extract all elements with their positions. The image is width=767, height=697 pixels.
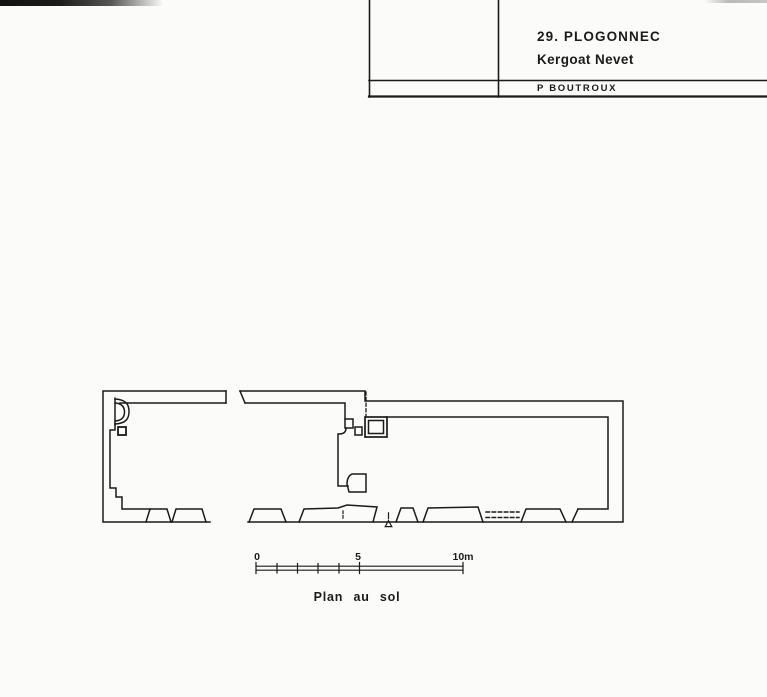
south-wall-segment	[396, 508, 418, 522]
scale-bar	[256, 563, 463, 574]
right-building-inner-wall-east	[387, 417, 608, 509]
south-wall-segment-corner	[572, 509, 578, 522]
chimney-square-inner	[369, 421, 384, 434]
door-jamb-block	[345, 419, 353, 428]
south-wall-segment	[423, 507, 483, 522]
right-building-outer-wall	[240, 391, 623, 522]
datum-marker-icon	[385, 513, 392, 527]
wall-pier-block	[118, 427, 126, 435]
title-block-commune: 29. PLOGONNEC	[537, 29, 661, 44]
south-wall-segment	[521, 509, 566, 522]
left-building-walls	[103, 391, 226, 522]
door-jamb-block	[355, 427, 362, 435]
scale-label-10m: 10m	[452, 551, 473, 563]
right-building-west-end-bevel	[240, 391, 245, 403]
plan-caption: Plan au sol	[314, 590, 401, 604]
scale-label-5: 5	[355, 551, 361, 563]
oven-niche-inner-arc	[115, 403, 125, 421]
interior-partition-wall	[338, 434, 348, 486]
oven-niche-half-round	[115, 398, 129, 425]
stair-pier-footprint	[347, 474, 366, 492]
south-wall-segment	[249, 509, 286, 522]
title-block-site: Kergoat Nevet	[537, 52, 634, 67]
left-building-south-openings	[146, 509, 206, 522]
title-block-author: P BOUTROUX	[537, 83, 617, 94]
left-building-inner-west-wall-profile	[110, 424, 150, 509]
south-wall-segment	[146, 509, 171, 522]
scanned-drawing-sheet: 29. PLOGONNEC Kergoat Nevet P BOUTROUX 0…	[0, 0, 767, 697]
right-building-south-openings	[249, 505, 578, 522]
right-building-inner-top-wall-west	[245, 403, 345, 419]
door-jamb-curve	[339, 428, 346, 434]
right-building-walls	[240, 391, 623, 527]
south-wall-segment	[172, 509, 206, 522]
south-wall-segment	[299, 505, 377, 522]
chimney-square	[365, 417, 387, 437]
scale-label-0: 0	[254, 551, 260, 563]
